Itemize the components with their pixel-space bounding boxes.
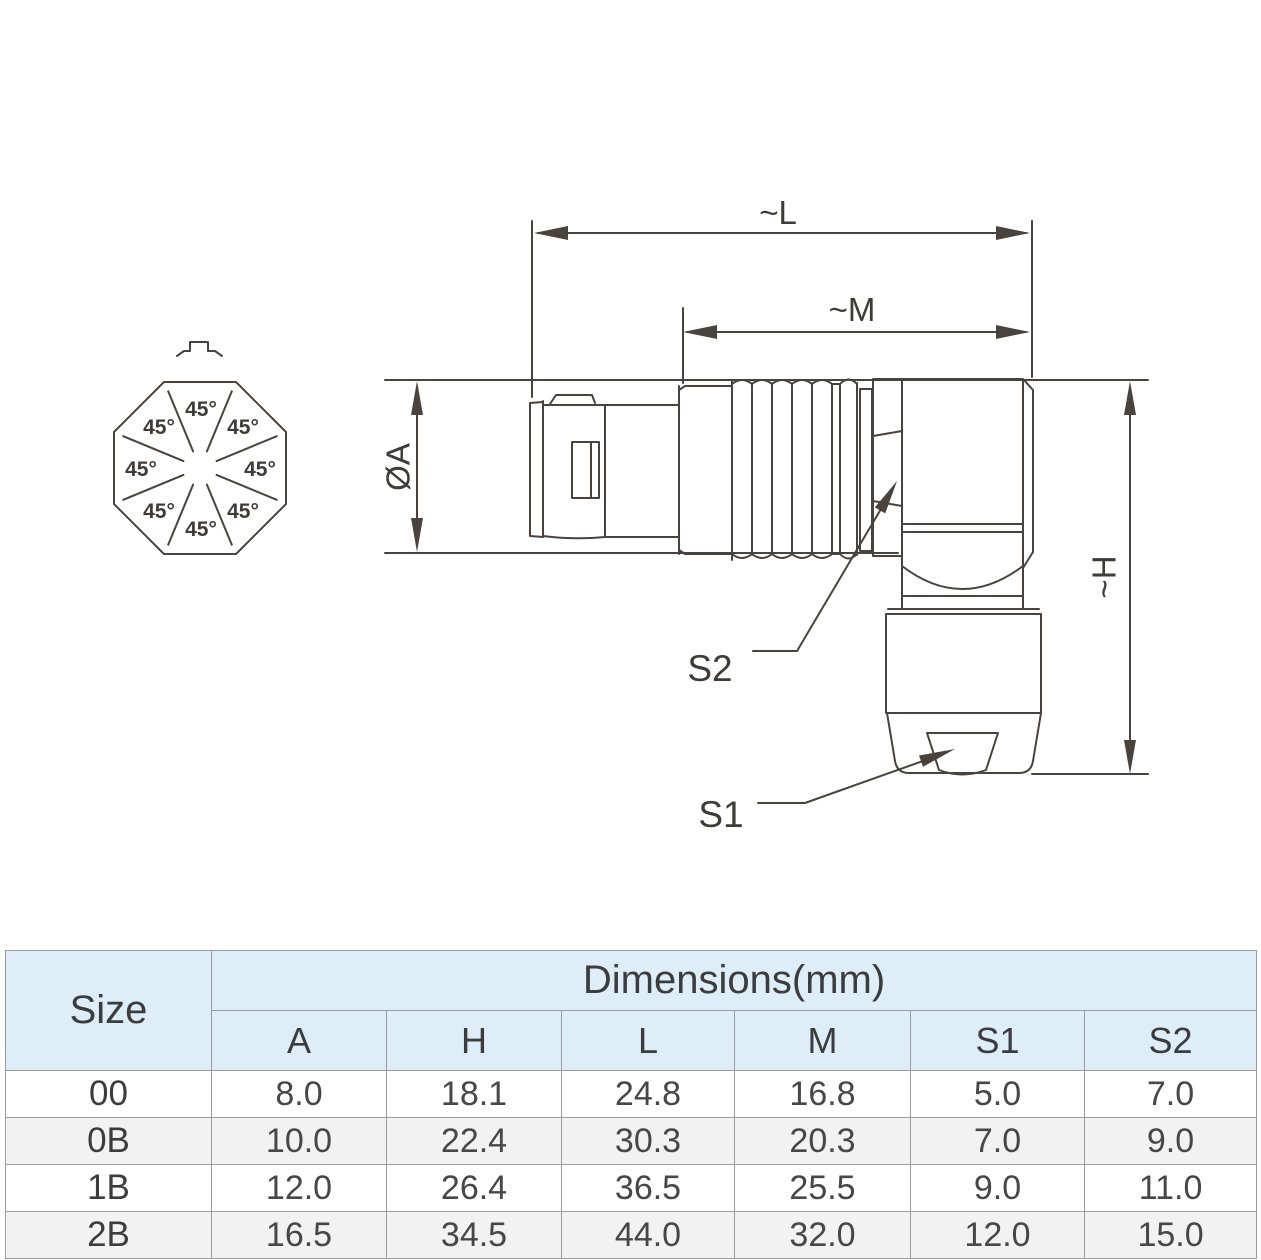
elbow-body — [902, 379, 1033, 609]
plug-front-ring — [530, 401, 543, 537]
value-cell: 30.3 — [562, 1118, 735, 1165]
angle-45-label: 45° — [143, 416, 175, 439]
value-cell: 12.0 — [911, 1212, 1085, 1259]
dim-label-m: ~M — [829, 291, 876, 328]
angle-45-label: 45° — [125, 458, 157, 481]
angle-45-label: 45° — [185, 398, 217, 421]
dim-label-l: ~L — [759, 194, 797, 231]
arrow-up-icon — [411, 381, 423, 415]
column-header-m: M — [735, 1011, 911, 1071]
s2-label: S2 — [687, 648, 732, 689]
size-cell: 1B — [6, 1165, 212, 1212]
arrow-right-icon — [996, 226, 1030, 240]
s2-arrowhead-icon — [875, 481, 897, 513]
rear-housing — [679, 381, 732, 560]
table-row-0b: 0B 10.0 22.4 30.3 20.3 7.0 9.0 — [6, 1118, 1257, 1165]
value-cell: 15.0 — [1085, 1212, 1257, 1259]
column-header-h: H — [387, 1011, 562, 1071]
value-cell: 9.0 — [1085, 1118, 1257, 1165]
value-cell: 22.4 — [387, 1118, 562, 1165]
arrow-down-icon — [411, 518, 423, 552]
value-cell: 18.1 — [387, 1071, 562, 1118]
value-cell: 20.3 — [735, 1118, 911, 1165]
value-cell: 34.5 — [387, 1212, 562, 1259]
arrow-down-icon — [1124, 740, 1136, 774]
value-cell: 25.5 — [735, 1165, 911, 1212]
value-cell: 26.4 — [387, 1165, 562, 1212]
s1-label: S1 — [698, 794, 743, 835]
column-header-a: A — [212, 1011, 387, 1071]
value-cell: 7.0 — [1085, 1071, 1257, 1118]
rib-dividers — [752, 383, 857, 555]
value-cell: 16.8 — [735, 1071, 911, 1118]
value-cell: 7.0 — [911, 1118, 1085, 1165]
value-cell: 10.0 — [212, 1118, 387, 1165]
gland-nut — [886, 609, 1041, 713]
value-cell: 5.0 — [911, 1071, 1085, 1118]
dim-label-diameter-a: ØA — [380, 443, 417, 491]
table-row-00: 00 8.0 18.1 24.8 16.8 5.0 7.0 — [6, 1071, 1257, 1118]
latch-window — [572, 442, 599, 498]
connector-side-view — [530, 379, 1041, 775]
arrow-left-icon — [683, 325, 717, 339]
value-cell: 9.0 — [911, 1165, 1085, 1212]
arrow-up-icon — [1124, 381, 1136, 415]
angle-45-label: 45° — [185, 518, 217, 541]
column-header-l: L — [562, 1011, 735, 1071]
dimensions-table: Size Dimensions(mm) A H L M S1 S2 00 8.0… — [5, 950, 1257, 1259]
connector-technical-drawing: 45° 45° 45° 45° 45° 45° 45° 45° ØA — [0, 0, 1261, 948]
rib-section-bottom-edge — [732, 554, 857, 559]
angle-45-label: 45° — [143, 500, 175, 523]
arrow-left-icon — [534, 226, 568, 240]
table-row-1b: 1B 12.0 26.4 36.5 25.5 9.0 11.0 — [6, 1165, 1257, 1212]
size-cell: 00 — [6, 1071, 212, 1118]
size-column-header: Size — [6, 951, 212, 1071]
plug-nose-outline — [543, 405, 679, 538]
callouts: S2 S1 — [687, 481, 955, 835]
dim-label-h: ~H — [1086, 555, 1123, 598]
column-header-s1: S1 — [911, 1011, 1085, 1071]
strain-relief-outline — [887, 713, 1041, 773]
value-cell: 24.8 — [562, 1071, 735, 1118]
value-cell: 8.0 — [212, 1071, 387, 1118]
octagon-keying-view: 45° 45° 45° 45° 45° 45° 45° 45° — [114, 342, 286, 554]
arrow-right-icon — [996, 325, 1030, 339]
size-cell: 0B — [6, 1118, 212, 1165]
key-profile-symbol — [177, 342, 222, 356]
hex-nut — [873, 379, 902, 556]
column-header-s2: S2 — [1085, 1011, 1257, 1071]
value-cell: 44.0 — [562, 1212, 735, 1259]
value-cell: 36.5 — [562, 1165, 735, 1212]
angle-45-label: 45° — [244, 458, 276, 481]
value-cell: 11.0 — [1085, 1165, 1257, 1212]
value-cell: 16.5 — [212, 1212, 387, 1259]
angle-45-label: 45° — [227, 500, 259, 523]
table-row-2b: 2B 16.5 34.5 44.0 32.0 12.0 15.0 — [6, 1212, 1257, 1259]
value-cell: 32.0 — [735, 1212, 911, 1259]
page: 45° 45° 45° 45° 45° 45° 45° 45° ØA — [0, 0, 1261, 1260]
size-cell: 2B — [6, 1212, 212, 1259]
dimensions-group-header: Dimensions(mm) — [212, 951, 1257, 1011]
angle-45-label: 45° — [227, 416, 259, 439]
plug-key-rib — [550, 395, 595, 404]
value-cell: 12.0 — [212, 1165, 387, 1212]
